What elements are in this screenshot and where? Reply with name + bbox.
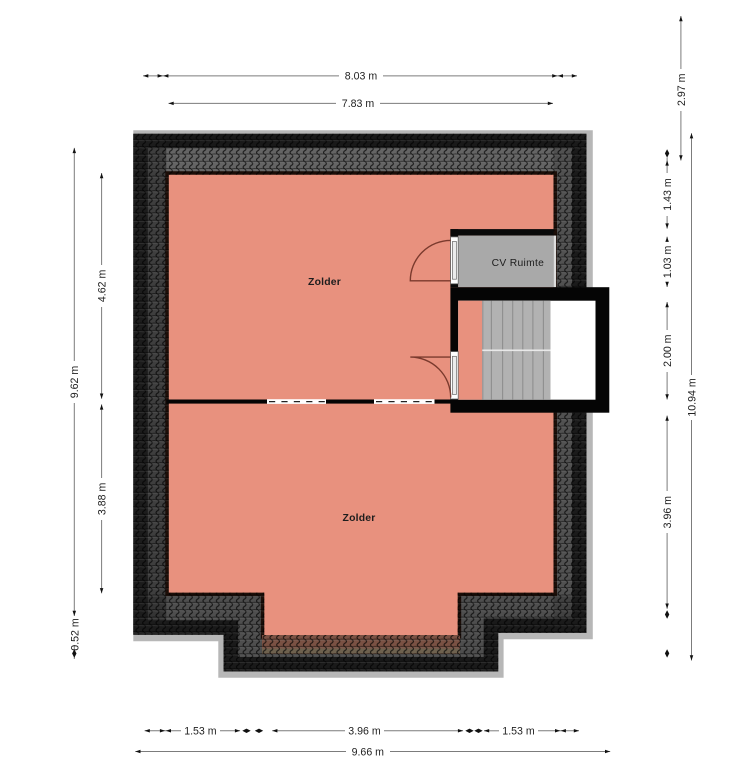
- svg-text:Zolder: Zolder: [308, 277, 341, 288]
- svg-text:9.66 m: 9.66 m: [352, 746, 385, 758]
- svg-text:1.53 m: 1.53 m: [184, 726, 217, 738]
- svg-text:8.03 m: 8.03 m: [345, 71, 378, 83]
- svg-text:1.03 m: 1.03 m: [662, 246, 674, 279]
- svg-text:3.96 m: 3.96 m: [662, 496, 674, 529]
- svg-text:9.62 m: 9.62 m: [69, 366, 81, 399]
- svg-text:Zolder: Zolder: [343, 513, 376, 524]
- svg-text:2.00 m: 2.00 m: [662, 334, 674, 367]
- svg-text:1.43 m: 1.43 m: [662, 178, 674, 211]
- svg-text:10.94 m: 10.94 m: [686, 378, 698, 416]
- svg-text:0.52 m: 0.52 m: [69, 618, 81, 651]
- svg-text:CV Ruimte: CV Ruimte: [492, 258, 544, 269]
- svg-text:1.53 m: 1.53 m: [502, 726, 535, 738]
- svg-text:2.97 m: 2.97 m: [676, 73, 688, 106]
- svg-text:4.62 m: 4.62 m: [97, 270, 109, 303]
- svg-text:3.88 m: 3.88 m: [97, 483, 109, 516]
- svg-text:7.83 m: 7.83 m: [342, 98, 375, 110]
- svg-text:3.96 m: 3.96 m: [348, 726, 381, 738]
